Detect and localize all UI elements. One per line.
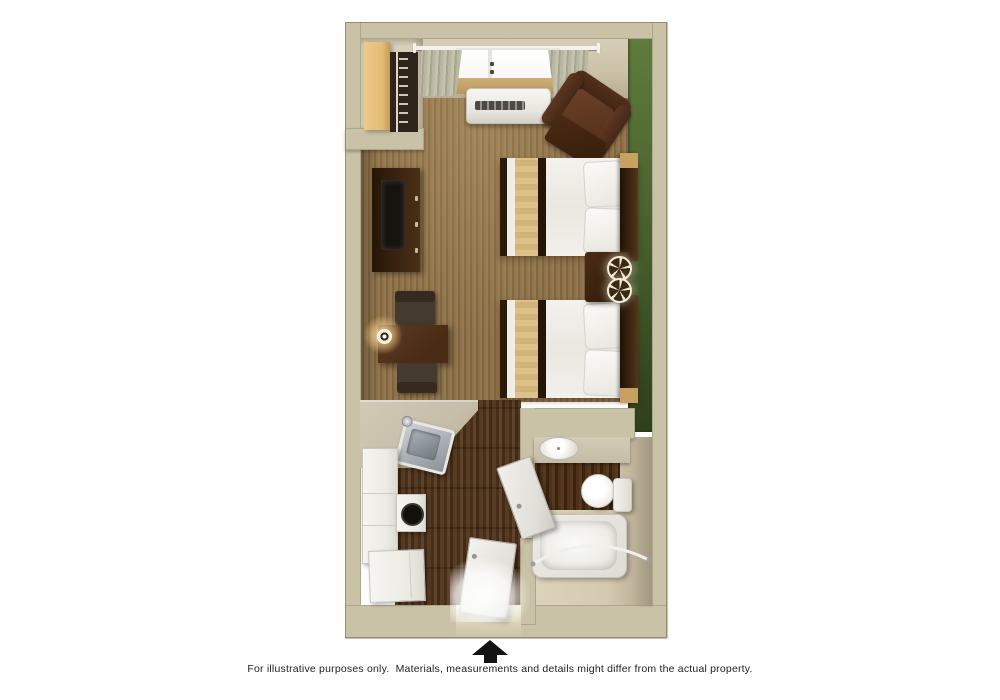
bed-2 [500,300,638,398]
bed-sheet-strip [507,158,515,256]
cooktop [396,494,426,532]
ac-vent-grill [475,101,525,110]
bed-trim [538,158,546,256]
entrance-arrow-stem [484,654,497,663]
pillow [583,207,624,255]
bathroom-top-wall [520,408,635,439]
bed-foot-rail [500,300,507,398]
drawer-handle-icon [415,248,418,253]
cabinet-seam [363,493,397,494]
door-knob-icon [516,503,522,509]
bed-sheet-strip [507,300,515,398]
tv-console [372,168,420,272]
bed-trim [538,300,546,398]
burner-icon [401,503,424,526]
bed-runner [515,158,538,256]
curtain-rod-cap-right [597,43,600,53]
pillow [583,349,624,397]
window-latch-icon [490,62,494,66]
bathroom-sink [539,437,579,460]
bed-1 [500,158,638,256]
curtain-left [420,50,462,96]
desk-lamp [377,329,392,344]
tv [381,180,405,250]
desk-chair-bottom [397,363,437,393]
curtain-rod-cap-left [413,43,416,53]
sink-basin [406,428,441,460]
headboard [620,295,638,403]
ac-unit [466,88,551,124]
doorway-light [450,558,530,622]
drawer-handle-icon [415,196,418,201]
wall-left [345,22,361,638]
headboard-cap [620,153,638,168]
floor-plan-page: For illustrative purposes only. Material… [0,0,1000,700]
headboard [620,153,638,261]
disclaimer-text: For illustrative purposes only. Material… [0,663,1000,675]
table-lamp-icon [607,278,632,303]
bed-runner [515,300,538,398]
headboard-cap [620,388,638,403]
floor-plan [345,22,667,638]
pillow [583,302,624,350]
window-latch-icon [490,70,494,74]
entrance-arrow-icon [472,640,508,655]
tall-cabinet [362,448,398,564]
bed-foot-rail [500,158,507,256]
toilet [581,474,615,508]
lower-cabinet [368,549,426,603]
closet-shelf [364,42,390,130]
desk-chair-top [395,291,435,325]
wall-top [345,22,667,39]
cabinet-seam [363,525,397,526]
pillow [583,160,624,208]
closet-hanging-space [390,52,418,132]
wall-right [652,22,668,638]
drawer-handle-icon [415,222,418,227]
closet-rod [396,52,398,132]
cabinet-door-seam [409,553,412,599]
bathroom-wall-shadow [630,437,652,607]
hangers-icon [399,54,408,130]
